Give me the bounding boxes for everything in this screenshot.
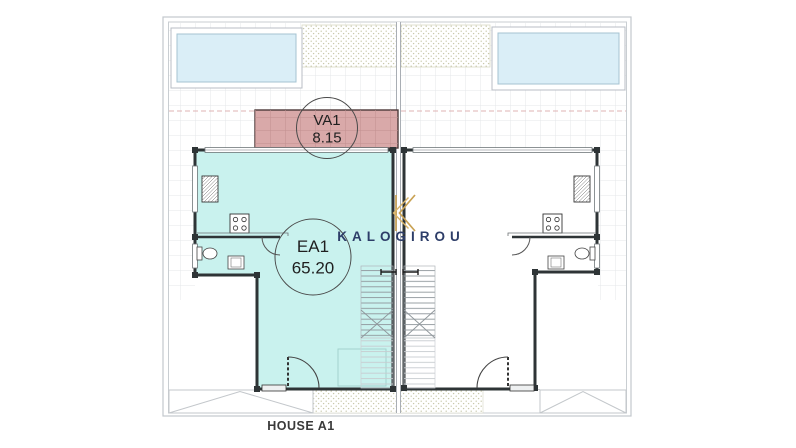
pier bbox=[401, 385, 407, 391]
gravel-top-left-dots bbox=[302, 25, 398, 67]
floor-plan-image: VA1 8.15 EA1 65.20 KALOGIROU HOUSE A1 bbox=[0, 0, 796, 448]
parking-right bbox=[540, 390, 626, 413]
pool-right-water bbox=[498, 33, 619, 84]
window-kitchen-left bbox=[193, 166, 198, 212]
va1-code: VA1 bbox=[313, 112, 340, 129]
parking-left-pad bbox=[169, 390, 313, 413]
staircase-right bbox=[403, 266, 435, 388]
toilet-icon bbox=[575, 248, 589, 259]
parking-right-pad bbox=[540, 390, 626, 413]
pier bbox=[390, 147, 396, 153]
pool-right bbox=[492, 27, 625, 90]
pool-left bbox=[171, 28, 302, 88]
stair-treads-right-upper bbox=[404, 266, 435, 338]
pier bbox=[192, 272, 198, 278]
pier bbox=[192, 147, 198, 153]
toilet-tank bbox=[197, 247, 202, 260]
door-sill-left bbox=[262, 385, 286, 391]
stove-icon bbox=[543, 214, 562, 233]
va1-area-value: 8.15 bbox=[312, 130, 341, 147]
stair-treads-right-lower bbox=[404, 338, 435, 388]
pier bbox=[532, 269, 538, 275]
fridge-hatch bbox=[202, 176, 218, 202]
ea1-code: EA1 bbox=[297, 237, 329, 256]
pool-left-water bbox=[177, 34, 296, 82]
floor-plan-canvas: VA1 8.15 EA1 65.20 KALOGIROU HOUSE A1 bbox=[0, 0, 796, 448]
yard-tiles-left-strip bbox=[169, 150, 195, 300]
door-sill-right bbox=[510, 385, 534, 391]
ea1-area-value: 65.20 bbox=[292, 259, 335, 278]
toilet-icon bbox=[203, 248, 217, 259]
pier bbox=[254, 386, 260, 392]
pier bbox=[401, 147, 407, 153]
stove-icon bbox=[230, 214, 249, 233]
window-kitchen-right bbox=[595, 166, 600, 212]
toilet-tank bbox=[590, 247, 595, 260]
gravel-top-right-dots bbox=[401, 25, 490, 67]
fridge-hatch bbox=[574, 176, 590, 202]
pier bbox=[254, 272, 260, 278]
pier bbox=[594, 269, 600, 275]
house-title: HOUSE A1 bbox=[267, 419, 334, 433]
stair-treads-left-lower bbox=[361, 338, 393, 388]
brand-name: KALOGIROU bbox=[337, 229, 465, 244]
yard-tiles-right-strip bbox=[598, 150, 626, 300]
parking-left bbox=[169, 390, 313, 413]
stair-treads-left-upper bbox=[361, 266, 393, 338]
pier bbox=[594, 147, 600, 153]
pier bbox=[390, 386, 396, 392]
